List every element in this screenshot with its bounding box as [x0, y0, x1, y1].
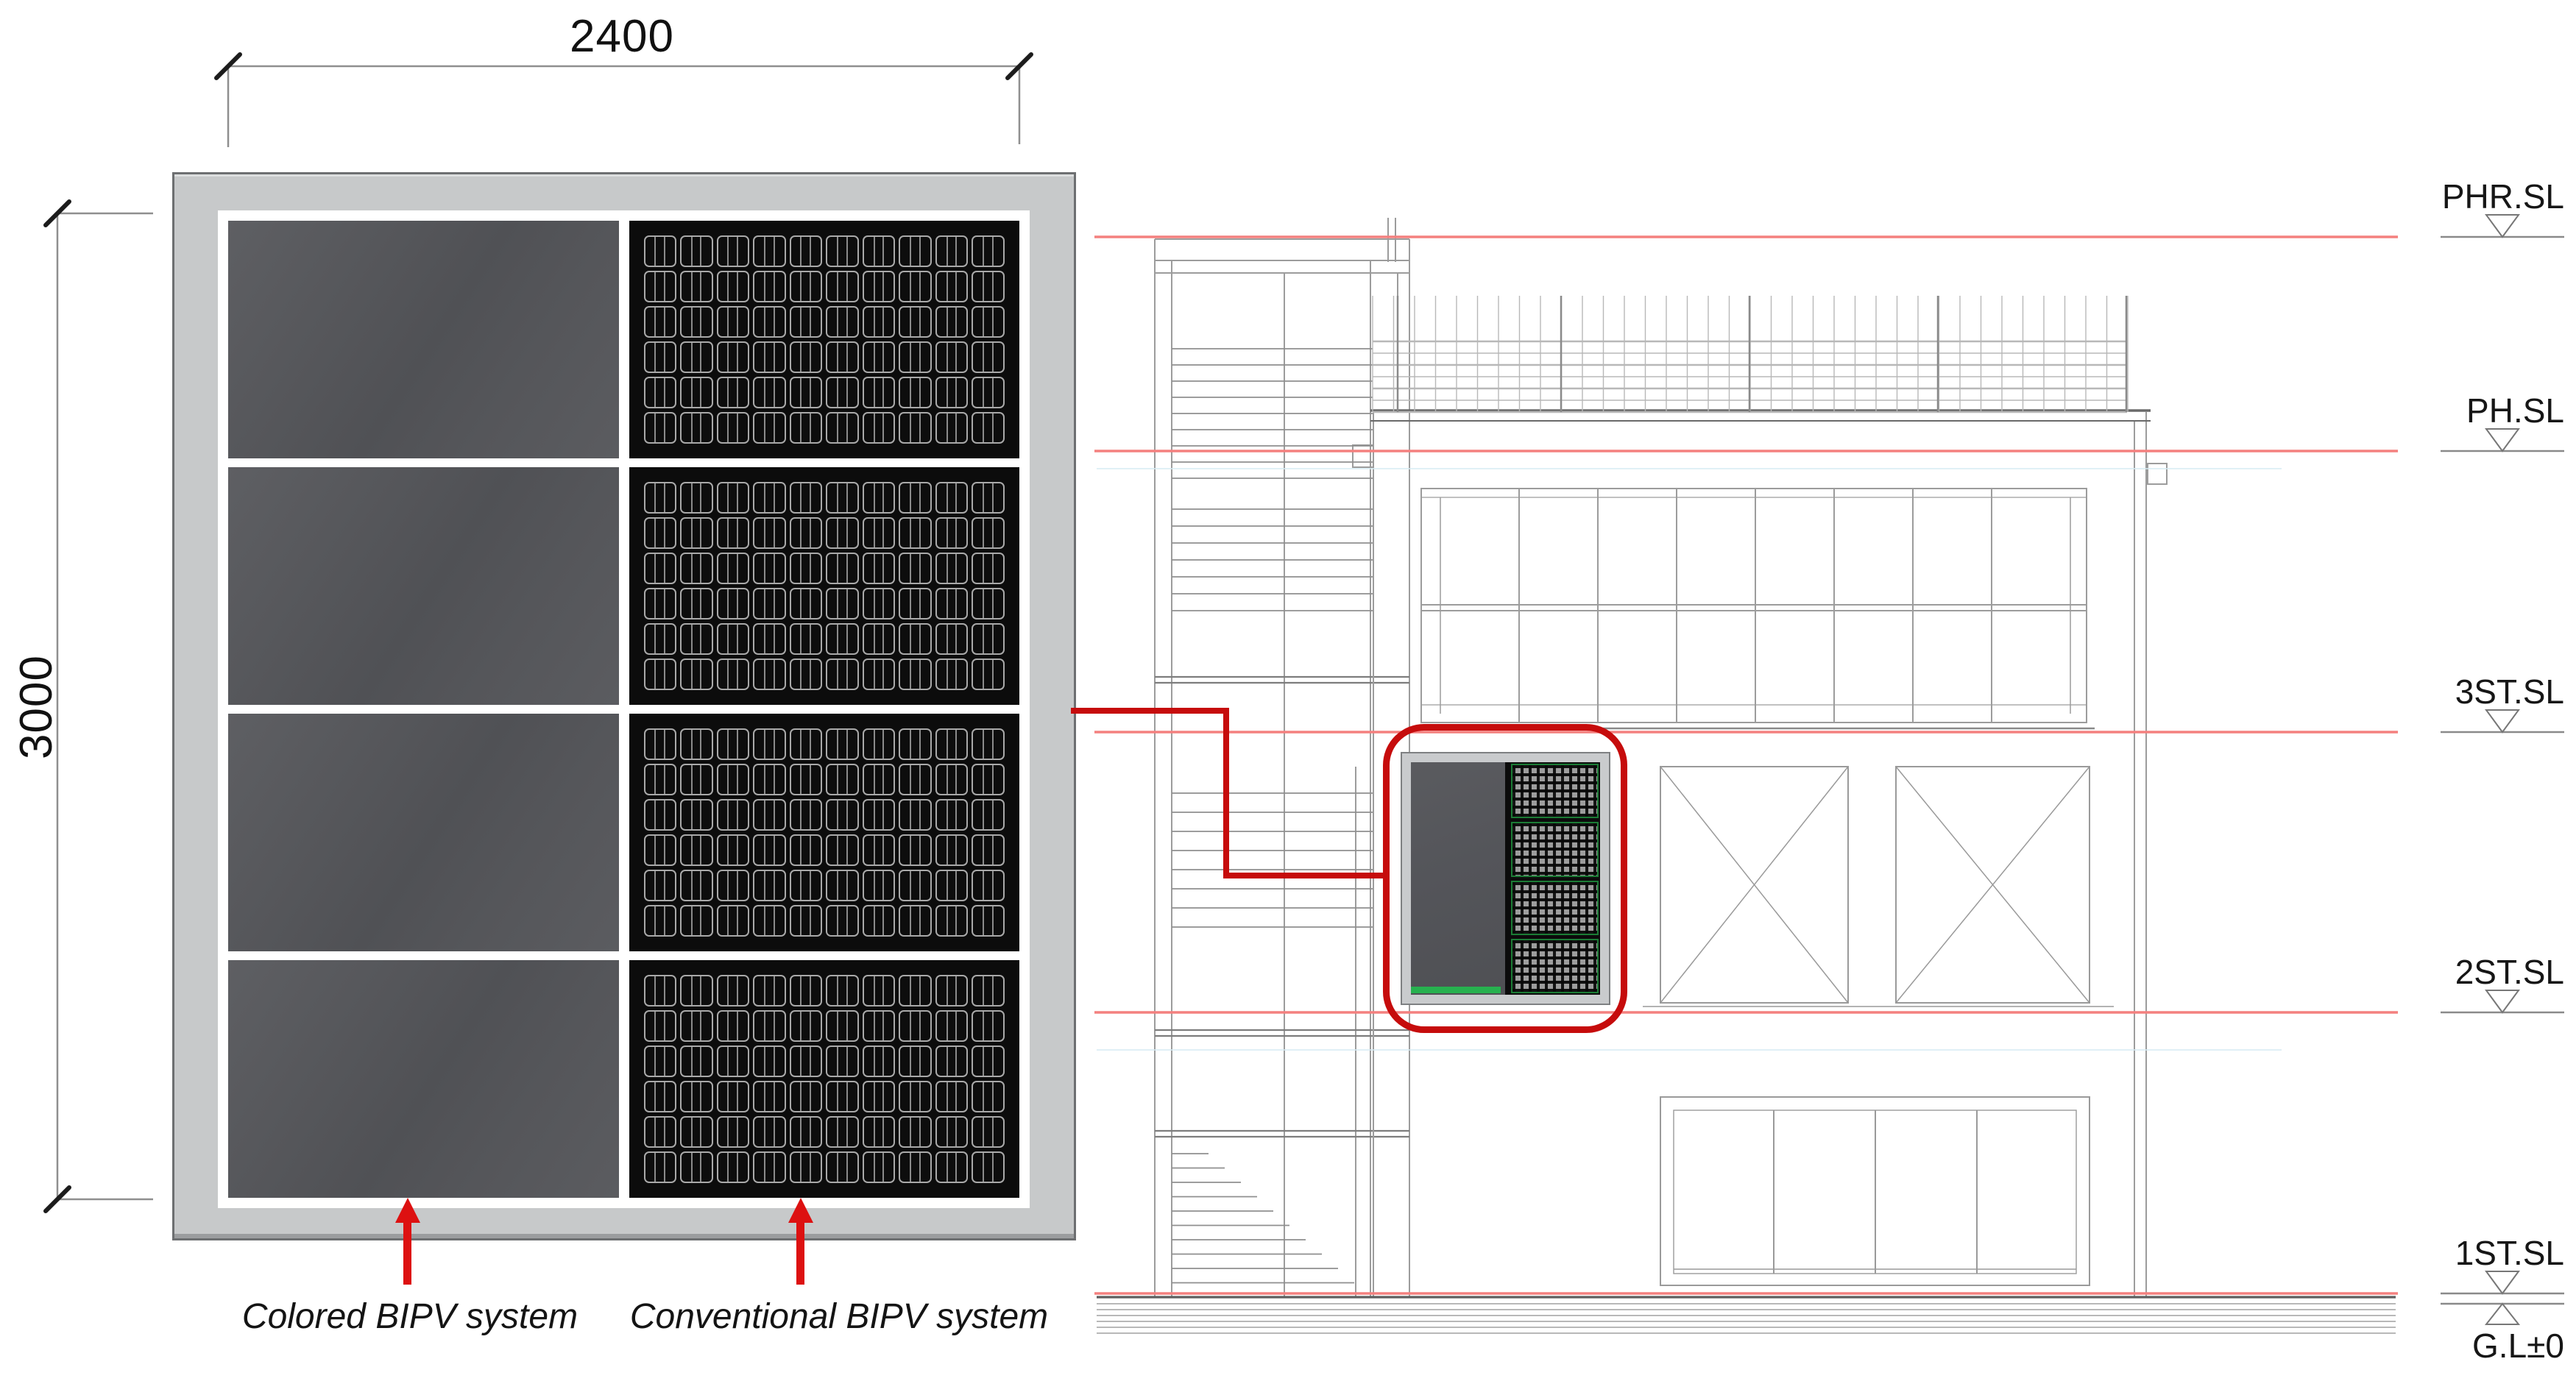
solar-cell	[680, 975, 713, 1007]
solar-cell	[717, 764, 750, 795]
solar-cell	[717, 1116, 750, 1148]
solar-cell	[972, 1151, 1005, 1183]
solar-cell	[680, 588, 713, 620]
solar-cell	[863, 517, 896, 549]
solar-cell	[644, 623, 677, 655]
solar-cell	[826, 306, 859, 338]
solar-cell	[753, 870, 786, 901]
solar-cell	[826, 975, 859, 1007]
solar-cell	[972, 834, 1005, 866]
solar-cell	[717, 482, 750, 514]
solar-cell	[717, 623, 750, 655]
solar-cell	[644, 764, 677, 795]
solar-cell	[753, 1151, 786, 1183]
solar-cell	[972, 377, 1005, 408]
solar-cell	[972, 975, 1005, 1007]
solar-cell	[935, 658, 969, 690]
solar-cell	[717, 271, 750, 302]
conventional-bipv-tile	[629, 467, 1020, 705]
solar-cell	[644, 341, 677, 373]
solar-cell	[717, 1081, 750, 1112]
solar-cell	[826, 553, 859, 584]
solar-cell	[644, 728, 677, 760]
solar-cell	[972, 235, 1005, 267]
solar-cell	[717, 235, 750, 267]
solar-cell	[644, 658, 677, 690]
faint-guides	[1097, 469, 2282, 1050]
stair-flight-lines	[1172, 349, 1373, 1283]
solar-cell	[753, 623, 786, 655]
solar-cell	[790, 1116, 823, 1148]
solar-cell	[899, 412, 932, 444]
solar-cell	[826, 658, 859, 690]
solar-cell	[644, 799, 677, 831]
solar-cell	[717, 728, 750, 760]
solar-cell	[790, 623, 823, 655]
level-label-1stsl: 1ST.SL	[2318, 1235, 2564, 1271]
solar-cell	[863, 834, 896, 866]
ground-hatch	[1097, 1297, 2396, 1333]
solar-cell	[644, 975, 677, 1007]
colored-bipv-tile	[228, 467, 619, 705]
solar-cell	[972, 412, 1005, 444]
solar-cell	[680, 1010, 713, 1042]
solar-cell	[644, 412, 677, 444]
solar-cell	[753, 306, 786, 338]
figure-canvas: 2400 3000 Colored BIPV system Convention…	[0, 0, 2576, 1381]
solar-cell	[972, 1116, 1005, 1148]
solar-cell	[644, 870, 677, 901]
solar-cell	[790, 1010, 823, 1042]
level-label-2stsl: 2ST.SL	[2318, 954, 2564, 990]
solar-cell	[644, 271, 677, 302]
solar-cell	[753, 975, 786, 1007]
solar-cell	[680, 1116, 713, 1148]
solar-cell	[717, 905, 750, 937]
solar-cell	[935, 834, 969, 866]
solar-cell	[935, 1116, 969, 1148]
solar-cell	[826, 834, 859, 866]
solar-cell	[935, 306, 969, 338]
solar-cell	[972, 1081, 1005, 1112]
solar-cell	[972, 553, 1005, 584]
solar-cell	[935, 235, 969, 267]
solar-cell	[972, 870, 1005, 901]
solar-cell	[899, 658, 932, 690]
solar-cell	[935, 799, 969, 831]
solar-cell	[680, 341, 713, 373]
solar-cell	[644, 1045, 677, 1077]
solar-cell	[899, 1116, 932, 1148]
solar-cell	[753, 728, 786, 760]
solar-cell	[680, 1081, 713, 1112]
solar-cell	[863, 588, 896, 620]
solar-cell	[972, 764, 1005, 795]
solar-cell	[863, 623, 896, 655]
solar-cell	[826, 1116, 859, 1148]
stair-landings	[1155, 677, 1409, 1137]
solar-cell	[899, 799, 932, 831]
solar-cell	[826, 412, 859, 444]
solar-cell	[826, 799, 859, 831]
solar-cell	[790, 235, 823, 267]
solar-cell	[863, 1010, 896, 1042]
solar-cell	[899, 553, 932, 584]
solar-cell	[826, 482, 859, 514]
solar-cell	[826, 1010, 859, 1042]
solar-cell	[826, 1151, 859, 1183]
connector-line-vertical	[1223, 708, 1229, 878]
solar-cell	[935, 482, 969, 514]
solar-cell	[972, 658, 1005, 690]
solar-cell	[680, 271, 713, 302]
solar-cell	[680, 412, 713, 444]
solar-cell	[790, 412, 823, 444]
colored-bipv-tile	[228, 714, 619, 951]
solar-cell	[935, 905, 969, 937]
solar-cell	[790, 553, 823, 584]
solar-cell	[935, 341, 969, 373]
roof-railing	[1373, 296, 2128, 412]
solar-cell	[899, 1151, 932, 1183]
solar-cell	[717, 588, 750, 620]
solar-cell	[680, 764, 713, 795]
solar-cell	[717, 1010, 750, 1042]
solar-cell	[899, 870, 932, 901]
solar-cell	[790, 1081, 823, 1112]
solar-cell	[790, 975, 823, 1007]
height-dimension-label: 3000	[10, 597, 57, 817]
solar-cell	[863, 235, 896, 267]
solar-cell	[935, 588, 969, 620]
solar-cell	[899, 235, 932, 267]
solar-cell	[753, 764, 786, 795]
solar-cell	[753, 341, 786, 373]
solar-cell	[972, 623, 1005, 655]
solar-cell	[644, 1010, 677, 1042]
solar-cell	[644, 517, 677, 549]
solar-cell	[790, 271, 823, 302]
solar-cell	[644, 1116, 677, 1148]
solar-cell	[863, 905, 896, 937]
solar-cell	[717, 870, 750, 901]
solar-cell	[826, 623, 859, 655]
conventional-arrow-shaft	[796, 1221, 804, 1285]
solar-cell	[935, 764, 969, 795]
solar-cell	[790, 588, 823, 620]
colored-system-label: Colored BIPV system	[189, 1296, 631, 1337]
solar-cell	[717, 799, 750, 831]
solar-cell	[899, 623, 932, 655]
width-dimension-label: 2400	[512, 10, 732, 63]
solar-cell	[899, 1045, 932, 1077]
solar-cell	[753, 799, 786, 831]
solar-cell	[753, 517, 786, 549]
solar-cell	[790, 658, 823, 690]
solar-cell	[680, 482, 713, 514]
solar-cell	[972, 1045, 1005, 1077]
solar-cell	[863, 1081, 896, 1112]
solar-cell	[863, 377, 896, 408]
solar-cell	[790, 482, 823, 514]
solar-cell	[863, 1116, 896, 1148]
solar-cell	[753, 1116, 786, 1148]
solar-cell	[899, 341, 932, 373]
solar-cell	[972, 517, 1005, 549]
solar-cell	[826, 377, 859, 408]
solar-cell	[972, 482, 1005, 514]
solar-cell	[680, 1045, 713, 1077]
solar-cell	[790, 905, 823, 937]
solar-cell	[680, 834, 713, 866]
solar-cell	[790, 341, 823, 373]
level-label-phsl: PH.SL	[2318, 392, 2564, 429]
solar-cell	[753, 658, 786, 690]
solar-cell	[972, 905, 1005, 937]
solar-cell	[899, 905, 932, 937]
solar-cell	[717, 306, 750, 338]
level-label-phrsl: PHR.SL	[2318, 178, 2564, 215]
solar-cell	[680, 905, 713, 937]
solar-cell	[790, 377, 823, 408]
solar-cell	[863, 658, 896, 690]
solar-cell	[863, 975, 896, 1007]
solar-cell	[644, 905, 677, 937]
solar-cell	[935, 1081, 969, 1112]
solar-cell	[826, 728, 859, 760]
conventional-arrow-head	[788, 1198, 813, 1223]
solar-cell	[935, 271, 969, 302]
solar-cell	[826, 905, 859, 937]
solar-cell	[717, 517, 750, 549]
solar-cell	[680, 377, 713, 408]
solar-cell	[972, 341, 1005, 373]
solar-cell	[935, 553, 969, 584]
solar-cell	[935, 1010, 969, 1042]
solar-cell	[972, 306, 1005, 338]
solar-cell	[790, 306, 823, 338]
conventional-bipv-tile	[629, 221, 1020, 458]
solar-cell	[972, 588, 1005, 620]
solar-cell	[826, 271, 859, 302]
solar-cell	[863, 1151, 896, 1183]
connector-line-horizontal-1	[1071, 708, 1228, 714]
solar-cell	[863, 1045, 896, 1077]
solar-cell	[863, 799, 896, 831]
solar-cell	[899, 1081, 932, 1112]
solar-cell	[790, 1045, 823, 1077]
window-band-3f	[1417, 489, 2095, 728]
colored-arrow-shaft	[403, 1221, 411, 1285]
solar-cell	[899, 306, 932, 338]
solar-cell	[717, 1045, 750, 1077]
solar-cell	[826, 1081, 859, 1112]
solar-cell	[790, 834, 823, 866]
solar-cell	[753, 905, 786, 937]
solar-cell	[972, 799, 1005, 831]
solar-cell	[680, 658, 713, 690]
solar-cell	[644, 1151, 677, 1183]
solar-cell	[935, 728, 969, 760]
solar-cell	[899, 271, 932, 302]
solar-cell	[644, 1081, 677, 1112]
solar-cell	[790, 1151, 823, 1183]
solar-cell	[826, 1045, 859, 1077]
solar-cell	[753, 588, 786, 620]
solar-cell	[863, 870, 896, 901]
solar-cell	[899, 377, 932, 408]
solar-cell	[790, 799, 823, 831]
solar-cell	[899, 517, 932, 549]
solar-cell	[863, 553, 896, 584]
solar-cell	[644, 306, 677, 338]
solar-cell	[826, 588, 859, 620]
solar-cell	[863, 482, 896, 514]
solar-cell	[972, 1010, 1005, 1042]
solar-cell	[935, 412, 969, 444]
solar-cell	[935, 517, 969, 549]
solar-cell	[826, 341, 859, 373]
solar-cell	[935, 1045, 969, 1077]
solar-cell	[753, 271, 786, 302]
solar-cell	[935, 1151, 969, 1183]
solar-cell	[717, 412, 750, 444]
solar-cell	[680, 517, 713, 549]
solar-cell	[863, 341, 896, 373]
solar-cell	[899, 975, 932, 1007]
solar-cell	[790, 728, 823, 760]
level-label-gl0: G.L±0	[2318, 1327, 2564, 1364]
solar-cell	[717, 377, 750, 408]
solar-cell	[680, 870, 713, 901]
solar-cell	[899, 588, 932, 620]
solar-cell	[826, 870, 859, 901]
solar-cell	[753, 1045, 786, 1077]
solar-cell	[644, 834, 677, 866]
module-tile-grid	[228, 221, 1019, 1198]
solar-cell	[680, 1151, 713, 1183]
solar-cell	[753, 1081, 786, 1112]
solar-cell	[717, 975, 750, 1007]
solar-cell	[863, 306, 896, 338]
solar-cell	[899, 482, 932, 514]
solar-cell	[863, 271, 896, 302]
conventional-system-label: Conventional BIPV system	[618, 1296, 1060, 1337]
solar-cell	[644, 377, 677, 408]
solar-cell	[826, 764, 859, 795]
solar-cell	[753, 235, 786, 267]
colored-bipv-tile	[228, 221, 619, 458]
solar-cell	[935, 377, 969, 408]
solar-cell	[644, 482, 677, 514]
solar-cell	[680, 623, 713, 655]
solar-cell	[863, 764, 896, 795]
solar-cell	[863, 412, 896, 444]
conventional-bipv-tile	[629, 960, 1020, 1198]
solar-cell	[644, 235, 677, 267]
solar-cell	[753, 377, 786, 408]
connector-line-horizontal-2	[1223, 873, 1385, 878]
colored-bipv-tile	[228, 960, 619, 1198]
solar-cell	[680, 728, 713, 760]
solar-cell	[680, 235, 713, 267]
solar-cell	[899, 764, 932, 795]
level-label-3stsl: 3ST.SL	[2318, 673, 2564, 710]
solar-cell	[753, 553, 786, 584]
solar-cell	[717, 341, 750, 373]
solar-cell	[680, 553, 713, 584]
x-braced-windows	[1643, 767, 2114, 1007]
solar-cell	[790, 870, 823, 901]
solar-cell	[753, 1010, 786, 1042]
colored-arrow-head	[395, 1198, 420, 1223]
solar-cell	[644, 553, 677, 584]
solar-cell	[972, 728, 1005, 760]
storefront-1f	[1660, 1097, 2090, 1285]
solar-cell	[826, 517, 859, 549]
highlight-outline	[1383, 724, 1627, 1033]
solar-cell	[717, 553, 750, 584]
solar-cell	[717, 658, 750, 690]
solar-cell	[790, 764, 823, 795]
solar-cell	[935, 975, 969, 1007]
solar-cell	[935, 870, 969, 901]
solar-cell	[935, 623, 969, 655]
solar-cell	[899, 728, 932, 760]
solar-cell	[826, 235, 859, 267]
solar-cell	[644, 588, 677, 620]
solar-cell	[899, 1010, 932, 1042]
solar-cell	[680, 306, 713, 338]
bipv-module-diagram	[172, 172, 1076, 1240]
solar-cell	[753, 412, 786, 444]
solar-cell	[717, 1151, 750, 1183]
solar-cell	[753, 834, 786, 866]
conventional-bipv-tile	[629, 714, 1020, 951]
solar-cell	[790, 517, 823, 549]
module-glass	[218, 210, 1030, 1208]
solar-cell	[717, 834, 750, 866]
solar-cell	[899, 834, 932, 866]
solar-cell	[972, 271, 1005, 302]
solar-cell	[863, 728, 896, 760]
solar-cell	[680, 799, 713, 831]
solar-cell	[753, 482, 786, 514]
